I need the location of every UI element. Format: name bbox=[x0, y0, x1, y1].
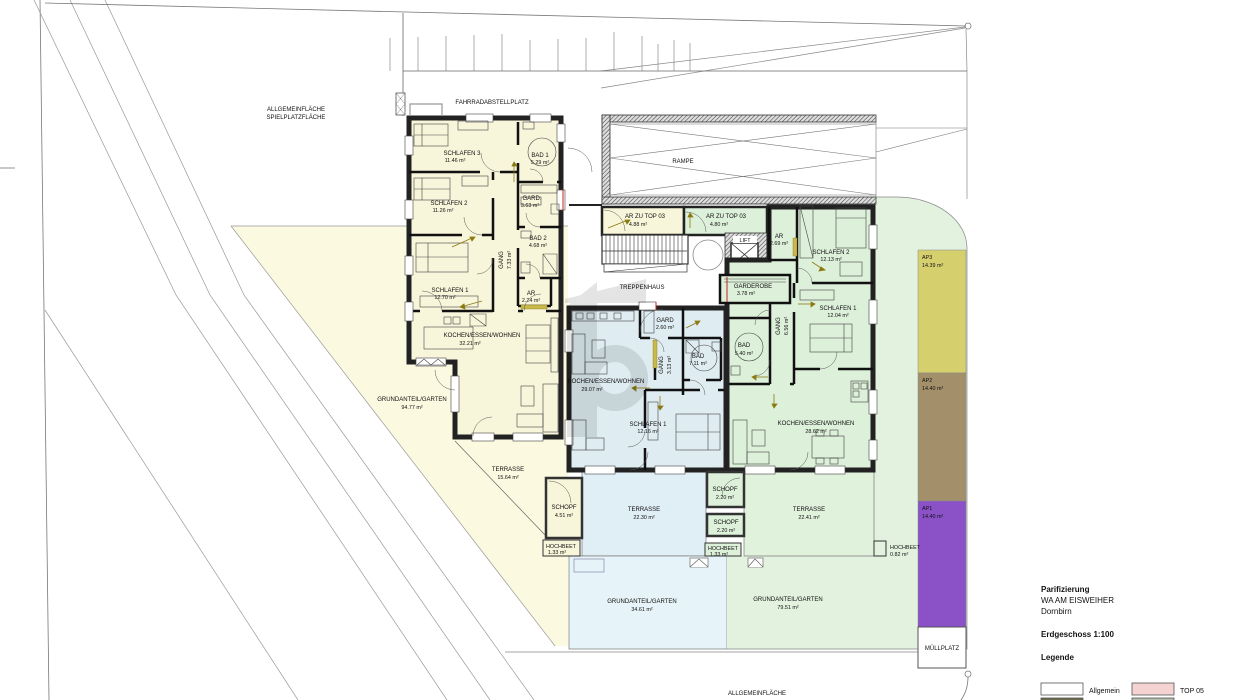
svg-text:GARD: GARD bbox=[656, 318, 674, 324]
svg-text:TERRASSE: TERRASSE bbox=[492, 467, 524, 473]
svg-text:3.78 m²: 3.78 m² bbox=[737, 291, 755, 297]
svg-text:22.30 m²: 22.30 m² bbox=[633, 515, 654, 521]
svg-text:GRUNDANTEIL/GARTEN: GRUNDANTEIL/GARTEN bbox=[753, 597, 823, 603]
svg-text:KOCHEN/ESSEN/WOHNEN: KOCHEN/ESSEN/WOHNEN bbox=[778, 421, 855, 427]
svg-text:BAD: BAD bbox=[738, 343, 751, 349]
svg-text:SCHLAFEN 2: SCHLAFEN 2 bbox=[812, 250, 850, 256]
svg-text:15.64 m²: 15.64 m² bbox=[497, 475, 518, 481]
svg-text:TOP 05: TOP 05 bbox=[1180, 688, 1204, 695]
svg-text:0.82 m²: 0.82 m² bbox=[890, 552, 908, 558]
svg-text:12.13 m²: 12.13 m² bbox=[820, 257, 841, 263]
svg-text:BAD 1: BAD 1 bbox=[531, 153, 549, 159]
svg-text:1.33 m²: 1.33 m² bbox=[710, 552, 728, 558]
svg-text:BAD 2: BAD 2 bbox=[529, 236, 547, 242]
svg-text:1.33 m²: 1.33 m² bbox=[548, 550, 566, 556]
svg-text:SCHLAFEN 1: SCHLAFEN 1 bbox=[431, 288, 469, 294]
svg-text:BAD: BAD bbox=[692, 354, 705, 360]
svg-text:3.13 m²: 3.13 m² bbox=[667, 356, 673, 374]
svg-text:FAHRRADABSTELLPLATZ: FAHRRADABSTELLPLATZ bbox=[455, 100, 529, 106]
svg-text:AP2: AP2 bbox=[922, 378, 932, 384]
svg-text:94.77 m²: 94.77 m² bbox=[401, 405, 422, 411]
svg-text:3.63 m²: 3.63 m² bbox=[521, 203, 539, 209]
svg-text:4.88 m²: 4.88 m² bbox=[629, 222, 647, 228]
svg-text:GANG: GANG bbox=[499, 251, 505, 269]
svg-text:GANG: GANG bbox=[659, 356, 665, 374]
svg-text:ALLGEMEINFLÄCHE: ALLGEMEINFLÄCHE bbox=[267, 106, 325, 113]
svg-text:AR: AR bbox=[775, 234, 784, 240]
svg-text:SCHLAFEN 3: SCHLAFEN 3 bbox=[443, 151, 481, 157]
svg-text:SCHOPF: SCHOPF bbox=[551, 505, 576, 511]
svg-text:GRUNDANTEIL/GARTEN: GRUNDANTEIL/GARTEN bbox=[607, 599, 677, 605]
svg-text:79.51 m²: 79.51 m² bbox=[777, 605, 798, 611]
svg-text:SCHLAFEN 1: SCHLAFEN 1 bbox=[819, 306, 857, 312]
svg-text:AR: AR bbox=[527, 291, 536, 297]
svg-text:34.61 m²: 34.61 m² bbox=[631, 607, 652, 613]
svg-text:14.39 m²: 14.39 m² bbox=[922, 263, 943, 269]
svg-text:Parifizierung: Parifizierung bbox=[1041, 585, 1090, 594]
svg-text:11.26 m²: 11.26 m² bbox=[433, 208, 454, 214]
svg-text:GARDEROBE: GARDEROBE bbox=[734, 284, 772, 290]
svg-text:6.56 m²: 6.56 m² bbox=[784, 317, 790, 335]
svg-text:KOCHEN/ESSEN/WOHNEN: KOCHEN/ESSEN/WOHNEN bbox=[444, 333, 521, 339]
svg-text:14.40 m²: 14.40 m² bbox=[922, 386, 943, 392]
svg-text:12.04 m²: 12.04 m² bbox=[827, 313, 848, 319]
svg-text:AR ZU TOP 03: AR ZU TOP 03 bbox=[625, 214, 666, 220]
svg-text:SCHLAFEN 2: SCHLAFEN 2 bbox=[430, 201, 468, 207]
svg-text:GRUNDANTEIL/GARTEN: GRUNDANTEIL/GARTEN bbox=[377, 397, 447, 403]
svg-text:LIFT: LIFT bbox=[739, 238, 751, 244]
svg-text:RAMPE: RAMPE bbox=[672, 159, 693, 165]
svg-text:11.46 m²: 11.46 m² bbox=[445, 158, 466, 164]
svg-text:ALLGEMEINFLÄCHE: ALLGEMEINFLÄCHE bbox=[728, 690, 786, 697]
svg-text:SCHOPF: SCHOPF bbox=[712, 487, 737, 493]
svg-text:GANG: GANG bbox=[776, 317, 782, 335]
svg-text:2.20 m²: 2.20 m² bbox=[717, 528, 735, 534]
svg-text:Erdgeschoss 1:100: Erdgeschoss 1:100 bbox=[1041, 630, 1114, 639]
svg-text:SPIELPLATZFLÄCHE: SPIELPLATZFLÄCHE bbox=[267, 114, 326, 121]
svg-text:4.51 m²: 4.51 m² bbox=[555, 513, 573, 519]
svg-text:AP1: AP1 bbox=[922, 506, 932, 512]
svg-text:4.68 m²: 4.68 m² bbox=[529, 243, 547, 249]
svg-text:AP3: AP3 bbox=[922, 255, 932, 261]
svg-text:7.33 m²: 7.33 m² bbox=[507, 251, 513, 269]
svg-text:TERRASSE: TERRASSE bbox=[628, 507, 660, 513]
svg-text:Dornbirn: Dornbirn bbox=[1041, 607, 1072, 616]
svg-text:2.20 m²: 2.20 m² bbox=[716, 495, 734, 501]
svg-text:2.24 m²: 2.24 m² bbox=[522, 298, 540, 304]
svg-text:Legende: Legende bbox=[1041, 653, 1074, 662]
svg-text:SCHLAFEN 1: SCHLAFEN 1 bbox=[629, 422, 667, 428]
svg-text:HOCHBEET: HOCHBEET bbox=[890, 545, 921, 551]
svg-text:AR ZU TOP 03: AR ZU TOP 03 bbox=[706, 214, 747, 220]
svg-text:Allgemein: Allgemein bbox=[1089, 688, 1120, 695]
svg-text:22.41 m²: 22.41 m² bbox=[798, 515, 819, 521]
svg-text:2.60 m²: 2.60 m² bbox=[656, 325, 674, 331]
svg-text:SCHOPF: SCHOPF bbox=[713, 520, 738, 526]
svg-text:WA AM EISWEIHER: WA AM EISWEIHER bbox=[1041, 596, 1114, 605]
svg-text:32.21 m²: 32.21 m² bbox=[459, 341, 480, 347]
svg-text:TERRASSE: TERRASSE bbox=[793, 507, 825, 513]
svg-text:14.40 m²: 14.40 m² bbox=[922, 514, 943, 520]
svg-text:4.80 m²: 4.80 m² bbox=[710, 222, 728, 228]
svg-text:MÜLLPLATZ: MÜLLPLATZ bbox=[925, 645, 960, 652]
svg-text:5.40 m²: 5.40 m² bbox=[735, 351, 753, 357]
svg-text:2.69 m²: 2.69 m² bbox=[770, 241, 788, 247]
